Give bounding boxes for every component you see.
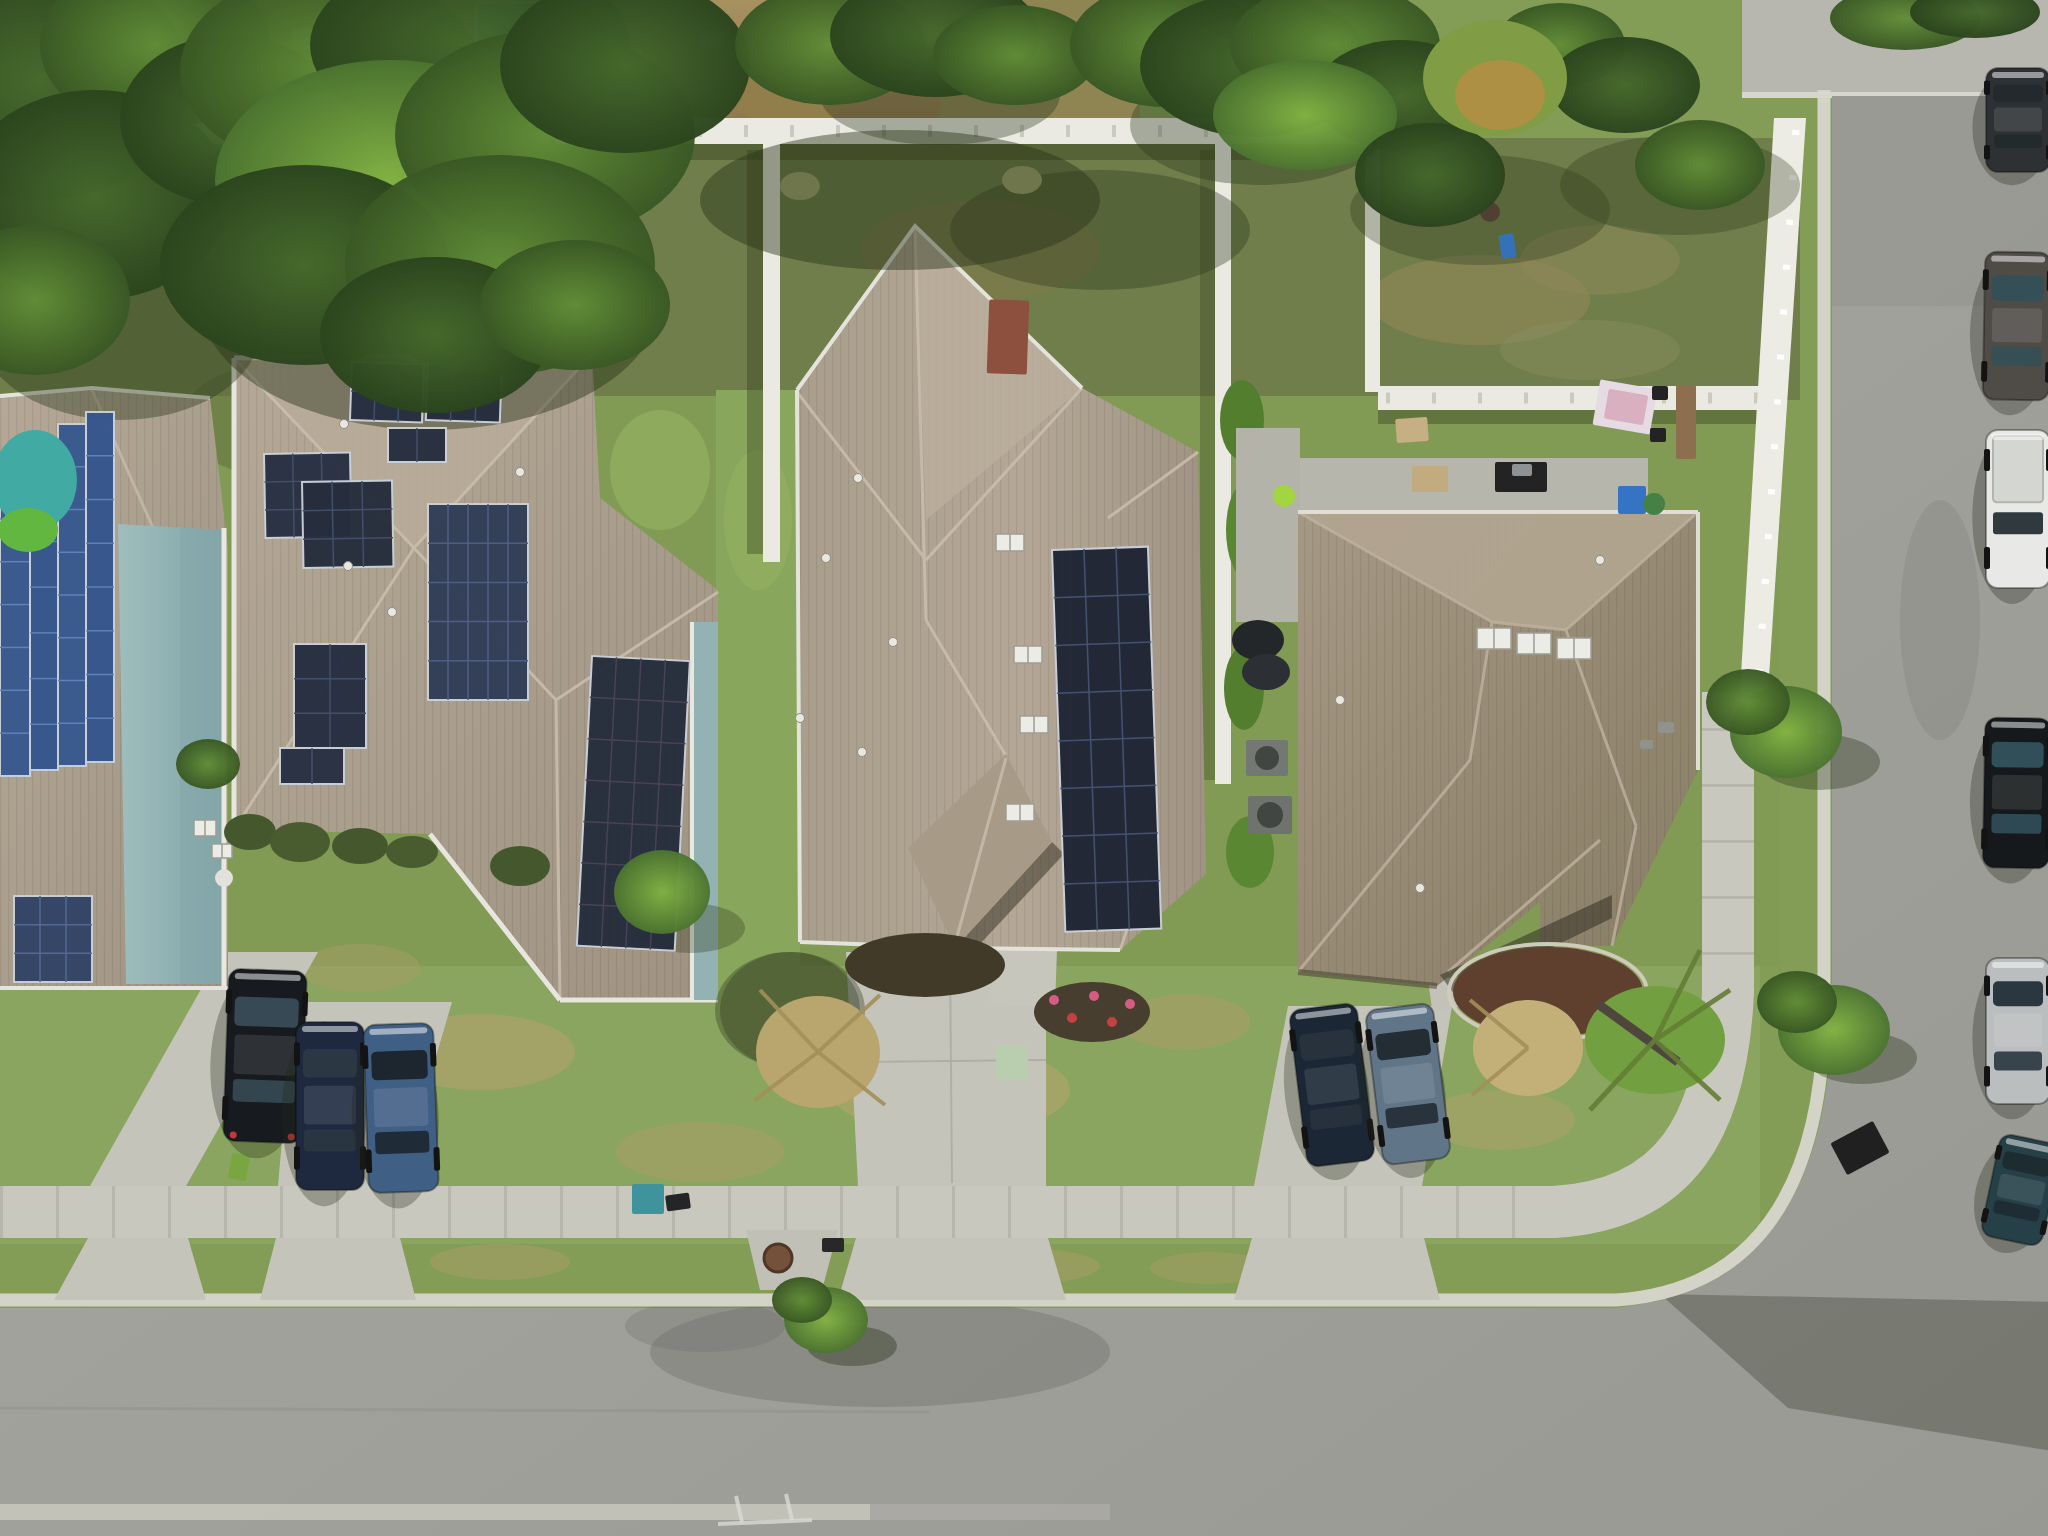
scene-canvas bbox=[0, 0, 2048, 1536]
aerial-photo-scene bbox=[0, 0, 2048, 1536]
vignette bbox=[0, 0, 2048, 1536]
